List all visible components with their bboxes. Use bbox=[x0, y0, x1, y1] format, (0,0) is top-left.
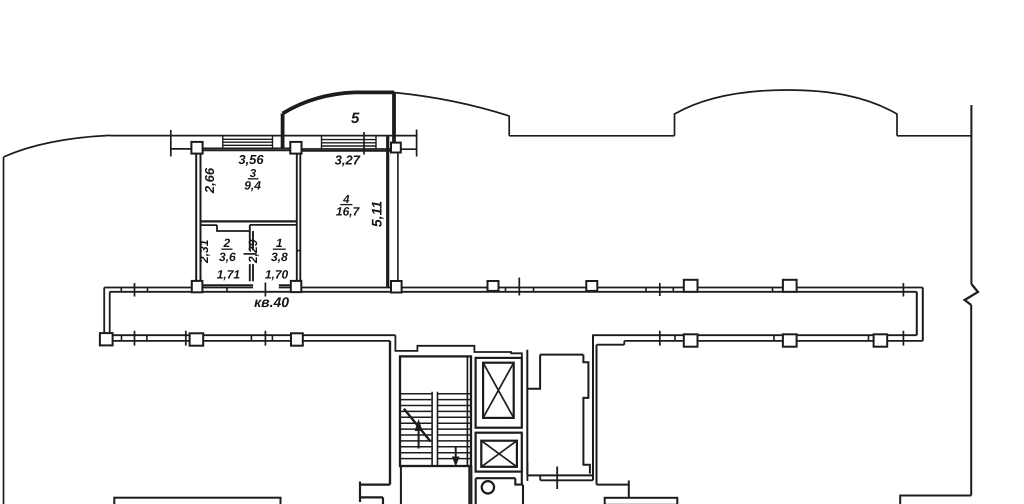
svg-text:кв.40: кв.40 bbox=[254, 294, 289, 310]
svg-text:3,8: 3,8 bbox=[271, 250, 288, 264]
svg-text:2,31: 2,31 bbox=[197, 239, 211, 264]
svg-text:5,11: 5,11 bbox=[369, 201, 385, 227]
svg-text:3,6: 3,6 bbox=[219, 250, 236, 264]
svg-text:16,7: 16,7 bbox=[336, 205, 361, 219]
svg-text:3,56: 3,56 bbox=[238, 152, 264, 167]
svg-text:5: 5 bbox=[351, 110, 360, 127]
svg-text:1,70: 1,70 bbox=[265, 268, 289, 282]
svg-text:2,29: 2,29 bbox=[246, 239, 260, 264]
svg-text:1,71: 1,71 bbox=[217, 268, 241, 282]
svg-text:2: 2 bbox=[222, 236, 230, 250]
svg-text:1: 1 bbox=[276, 236, 283, 250]
svg-text:9,4: 9,4 bbox=[244, 179, 261, 193]
svg-text:3,27: 3,27 bbox=[335, 153, 361, 168]
svg-text:2,66: 2,66 bbox=[202, 167, 217, 194]
